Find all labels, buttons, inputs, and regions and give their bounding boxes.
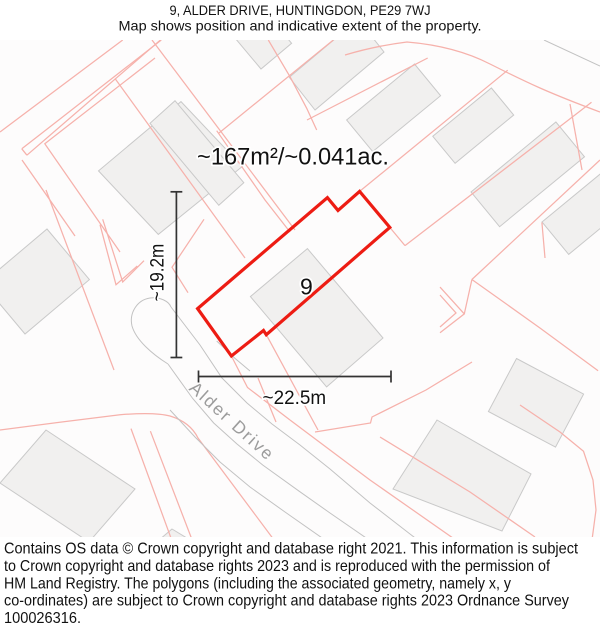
svg-text:9, ALDER DRIVE, HUNTINGDON, PE: 9, ALDER DRIVE, HUNTINGDON, PE29 7WJ [170,2,431,18]
svg-text:Contains OS data © Crown copyr: Contains OS data © Crown copyright and d… [4,541,579,558]
svg-text:~19.2m: ~19.2m [148,244,169,302]
svg-text:~22.5m: ~22.5m [263,388,327,409]
svg-text:HM Land Registry. The polygons: HM Land Registry. The polygons (includin… [4,575,511,592]
svg-text:9: 9 [300,274,313,300]
svg-text:~167m²/~0.041ac.: ~167m²/~0.041ac. [197,143,389,170]
svg-text:100026316.: 100026316. [4,610,81,625]
svg-text:Map shows position and indicat: Map shows position and indicative extent… [119,17,482,33]
svg-text:to Crown copyright and databas: to Crown copyright and database rights 2… [4,558,550,575]
svg-text:co-ordinates) are subject to C: co-ordinates) are subject to Crown copyr… [4,593,569,610]
